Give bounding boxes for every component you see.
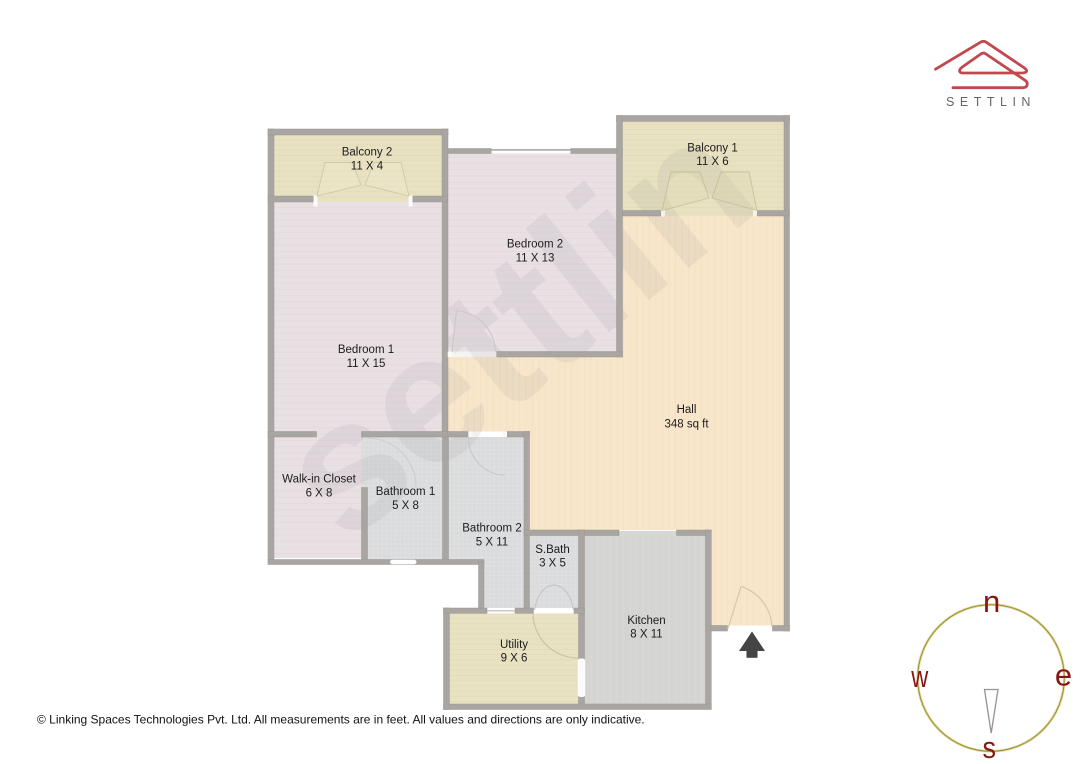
svg-text:Bedroom 1: Bedroom 1 bbox=[338, 344, 394, 356]
svg-text:SETTLIN: SETTLIN bbox=[946, 95, 1036, 109]
svg-text:11 X 4: 11 X 4 bbox=[351, 161, 384, 173]
svg-text:Walk-in Closet: Walk-in Closet bbox=[282, 474, 357, 486]
svg-text:11 X 13: 11 X 13 bbox=[516, 253, 555, 265]
svg-text:Bathroom 2: Bathroom 2 bbox=[462, 523, 521, 535]
svg-text:8 X 11: 8 X 11 bbox=[630, 629, 662, 641]
svg-text:5 X 8: 5 X 8 bbox=[392, 500, 419, 512]
svg-text:Balcony 1: Balcony 1 bbox=[687, 143, 738, 155]
svg-text:Balcony 2: Balcony 2 bbox=[342, 147, 393, 159]
svg-text:Utility: Utility bbox=[500, 639, 528, 651]
svg-text:11 X 6: 11 X 6 bbox=[696, 156, 728, 168]
svg-text:w: w bbox=[910, 659, 928, 694]
svg-text:11 X 15: 11 X 15 bbox=[347, 358, 386, 370]
svg-text:Hall: Hall bbox=[677, 404, 697, 416]
svg-text:S.Bath: S.Bath bbox=[535, 544, 570, 556]
svg-text:Bedroom 2: Bedroom 2 bbox=[507, 239, 563, 251]
svg-text:6 X 8: 6 X 8 bbox=[306, 488, 333, 500]
svg-text:e: e bbox=[1055, 658, 1072, 693]
svg-text:s: s bbox=[982, 730, 996, 764]
svg-text:n: n bbox=[983, 584, 1000, 619]
svg-text:© Linking Spaces Technologies: © Linking Spaces Technologies Pvt. Ltd. … bbox=[37, 713, 645, 727]
svg-text:Kitchen: Kitchen bbox=[627, 615, 665, 627]
svg-text:348 sq ft: 348 sq ft bbox=[664, 419, 709, 431]
svg-text:9 X 6: 9 X 6 bbox=[501, 653, 528, 665]
svg-text:Bathroom 1: Bathroom 1 bbox=[376, 486, 435, 498]
svg-text:5 X 11: 5 X 11 bbox=[476, 537, 508, 549]
svg-text:3 X 5: 3 X 5 bbox=[539, 558, 566, 570]
